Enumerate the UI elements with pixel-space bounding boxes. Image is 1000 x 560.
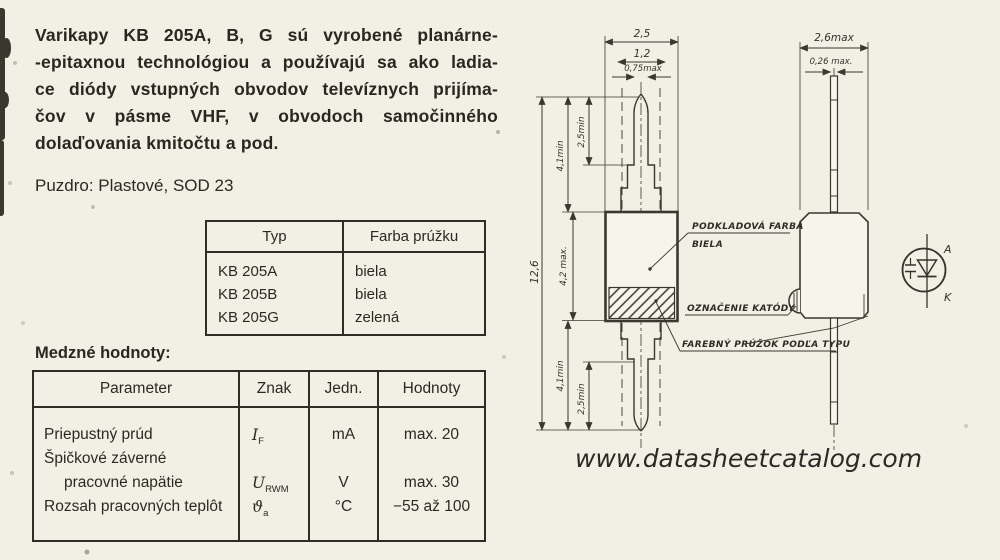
- limits-col-znak: IF URWM ϑa: [240, 408, 310, 540]
- package-dimension-drawing: 2,5 1,2 0,75max 12,6 4,1min 2,5min 4,2 m…: [500, 10, 1000, 460]
- varicap-symbol: [903, 234, 946, 308]
- table-cell: max. 30: [379, 471, 484, 495]
- package-type-line: Puzdro: Plastové, SOD 23: [35, 176, 233, 196]
- dim-side-width: 2,6max: [814, 32, 854, 44]
- table-cell: max. 20: [379, 423, 484, 447]
- table-cell: biela: [355, 260, 484, 283]
- limits-heading: Medzné hodnoty:: [35, 344, 171, 363]
- label-base-color-2: BIELA: [692, 240, 723, 250]
- symbol-cell: IF: [252, 423, 308, 447]
- table-cell: Priepustný prúd: [44, 423, 238, 447]
- scan-specks: [0, 0, 2, 2]
- dim-lead-bottom: 4,1min: [556, 360, 566, 392]
- side-body: [800, 213, 868, 318]
- dim-front-width-mid: 1,2: [634, 48, 651, 60]
- limits-header-parameter: Parameter: [34, 372, 240, 408]
- dim-total-height: 12,6: [529, 260, 541, 284]
- dim-lead-bottom-inner: 2,5min: [577, 383, 587, 415]
- table-cell: KB 205B: [218, 283, 342, 306]
- limits-header-znak: Znak: [240, 372, 310, 408]
- intro-paragraph: Varikapy KB 205A, B, G sú vyrobené planá…: [35, 22, 498, 157]
- side-view: [789, 42, 868, 450]
- cathode-label: K: [944, 291, 952, 304]
- symbol-cell: URWM: [252, 471, 308, 495]
- color-stripe-hatch: [609, 288, 675, 319]
- table-cell: °C: [310, 495, 377, 519]
- anode-label: A: [943, 243, 952, 256]
- dim-side-lead-width: 0,26 max.: [810, 57, 853, 67]
- table-cell: biela: [355, 283, 484, 306]
- dim-body-height: 4,2 max.: [559, 246, 569, 286]
- type-table-col-farba: biela biela zelená: [344, 253, 484, 334]
- intro-line: dolaďovania kmitočtu a pod.: [35, 130, 498, 157]
- table-cell: [379, 447, 484, 471]
- dim-lead-top: 4,1min: [556, 140, 566, 172]
- table-cell: Rozsah pracovných teplôt: [44, 495, 238, 519]
- limits-col-parameter: Priepustný prúd Špičkové záverné pracovn…: [34, 408, 240, 540]
- table-cell: zelená: [355, 306, 484, 329]
- side-bottom-lead: [831, 318, 838, 424]
- type-table-header-typ: Typ: [207, 222, 344, 253]
- limits-col-hodnoty: max. 20 max. 30 −55 až 100: [379, 408, 484, 540]
- table-cell: pracovné napätie: [44, 471, 238, 495]
- table-cell: [310, 447, 377, 471]
- scan-blob: [1, 92, 9, 108]
- side-top-lead: [831, 76, 838, 212]
- dim-front-lead-width: 0,75max: [624, 64, 662, 74]
- table-cell: KB 205A: [218, 260, 342, 283]
- scan-edge-artifact: [0, 8, 5, 140]
- label-base-color: PODKLADOVÁ FARBA: [692, 220, 804, 232]
- limits-header-jedn: Jedn.: [310, 372, 379, 408]
- dim-lead-top-inner: 2,5min: [577, 116, 587, 148]
- intro-line: čov v pásme VHF, v obvodoch samočinného: [35, 103, 498, 130]
- type-color-table: Typ Farba prúžku KB 205A KB 205B KB 205G…: [205, 220, 486, 336]
- intro-line: ce diódy vstupných obvodov televíznych p…: [35, 76, 498, 103]
- intro-line: -epitaxnou technológiou a používajú sa a…: [35, 49, 498, 76]
- table-cell: mA: [310, 423, 377, 447]
- label-cathode-mark: OZNAČENIE KATÓDY: [687, 302, 796, 314]
- watermark: www.datasheetcatalog.com: [575, 444, 887, 473]
- intro-line: Varikapy KB 205A, B, G sú vyrobené planá…: [35, 22, 498, 49]
- limits-header-hodnoty: Hodnoty: [379, 372, 484, 408]
- table-cell: Špičkové záverné: [44, 447, 238, 471]
- table-cell: KB 205G: [218, 306, 342, 329]
- type-table-col-typ: KB 205A KB 205B KB 205G: [207, 253, 344, 334]
- symbol-cell: [252, 447, 308, 471]
- bottom-lead: [621, 321, 641, 431]
- table-cell: V: [310, 471, 377, 495]
- dim-front-width: 2,5: [634, 28, 651, 40]
- scan-blob: [2, 38, 11, 58]
- scan-edge-artifact: [0, 140, 4, 216]
- limits-col-jedn: mA V °C: [310, 408, 379, 540]
- top-lead: [621, 94, 641, 212]
- limits-table: Parameter Znak Jedn. Hodnoty Priepustný …: [32, 370, 486, 542]
- symbol-cell: ϑa: [252, 495, 308, 519]
- table-cell: −55 až 100: [379, 495, 484, 519]
- type-table-header-farba: Farba prúžku: [344, 222, 484, 253]
